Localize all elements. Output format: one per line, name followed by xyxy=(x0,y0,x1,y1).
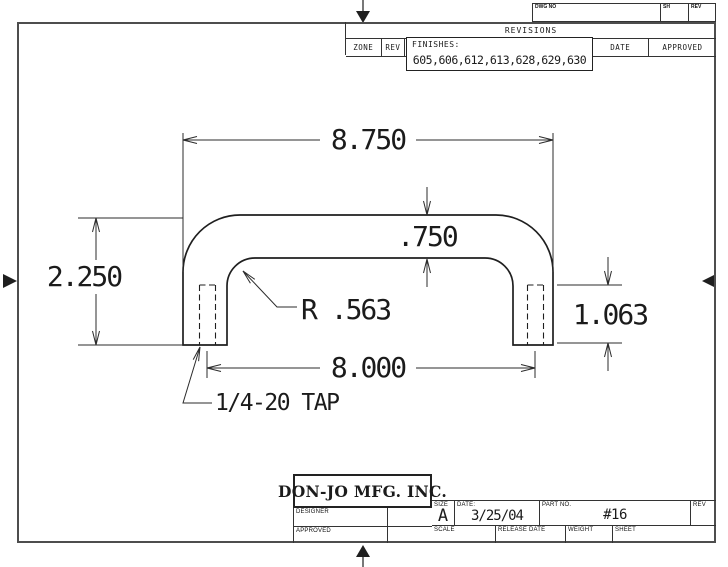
finishes-box: FINISHES: 605,606,612,613,628,629,630 xyxy=(406,37,593,71)
sh-label: SH xyxy=(661,4,689,21)
title-block-bottom-row: SCALE RELEASE DATE WEIGHT SHEET xyxy=(432,526,716,543)
designer-row: DESIGNER xyxy=(293,508,432,527)
rev-column-label: REV xyxy=(382,39,406,56)
date-value: 3/25/04 xyxy=(455,508,539,524)
weight-label: WEIGHT xyxy=(568,527,593,534)
left-center-mark-icon xyxy=(3,274,17,288)
size-value: A xyxy=(432,506,454,526)
dim-radius: R .563 xyxy=(301,296,411,324)
dwg-no-label: DWG NO xyxy=(533,4,661,21)
finishes-values: 605,606,612,613,628,629,630 xyxy=(407,53,592,67)
approved-value-cell xyxy=(388,527,432,543)
date-column-label: DATE xyxy=(593,39,649,56)
approved-label: APPROVED xyxy=(296,528,331,535)
designer-label: DESIGNER xyxy=(296,509,329,516)
dim-leg-height: 1.063 xyxy=(565,301,655,329)
company-logo: DON-JO MFG. INC. xyxy=(293,474,432,508)
approved-row: APPROVED xyxy=(293,527,432,543)
designer-value-cell xyxy=(388,508,432,526)
bottom-center-mark-icon xyxy=(356,545,370,557)
rev-label: REV xyxy=(693,502,706,509)
title-block-main-row: SIZE A DATE: 3/25/04 PART NO. #16 REV xyxy=(432,500,716,526)
release-date-label: RELEASE DATE xyxy=(498,527,545,534)
dim-thickness: .750 xyxy=(387,223,467,251)
tap-note: 1/4-20 TAP xyxy=(215,392,338,415)
dim-height: 2.250 xyxy=(39,263,129,291)
sheet-label: SHEET xyxy=(615,527,636,534)
rev-label-top: REV xyxy=(689,4,715,21)
dim-overall-width: 8.750 xyxy=(323,126,413,154)
zone-column-label: ZONE xyxy=(346,39,382,56)
approved-column-label: APPROVED xyxy=(649,39,716,56)
drawing-sheet: 8.750 .750 2.250 R .563 8.000 1.063 1/4-… xyxy=(0,0,728,567)
part-no-value: #16 xyxy=(540,507,690,523)
finishes-label: FINISHES: xyxy=(412,40,460,49)
scale-label: SCALE xyxy=(434,527,455,534)
dim-center-to-center: 8.000 xyxy=(323,354,413,382)
revisions-block: REVISIONS ZONE REV DATE APPROVED FINISHE… xyxy=(345,22,716,55)
dwg-no-strip: DWG NO SH REV xyxy=(532,3,716,22)
